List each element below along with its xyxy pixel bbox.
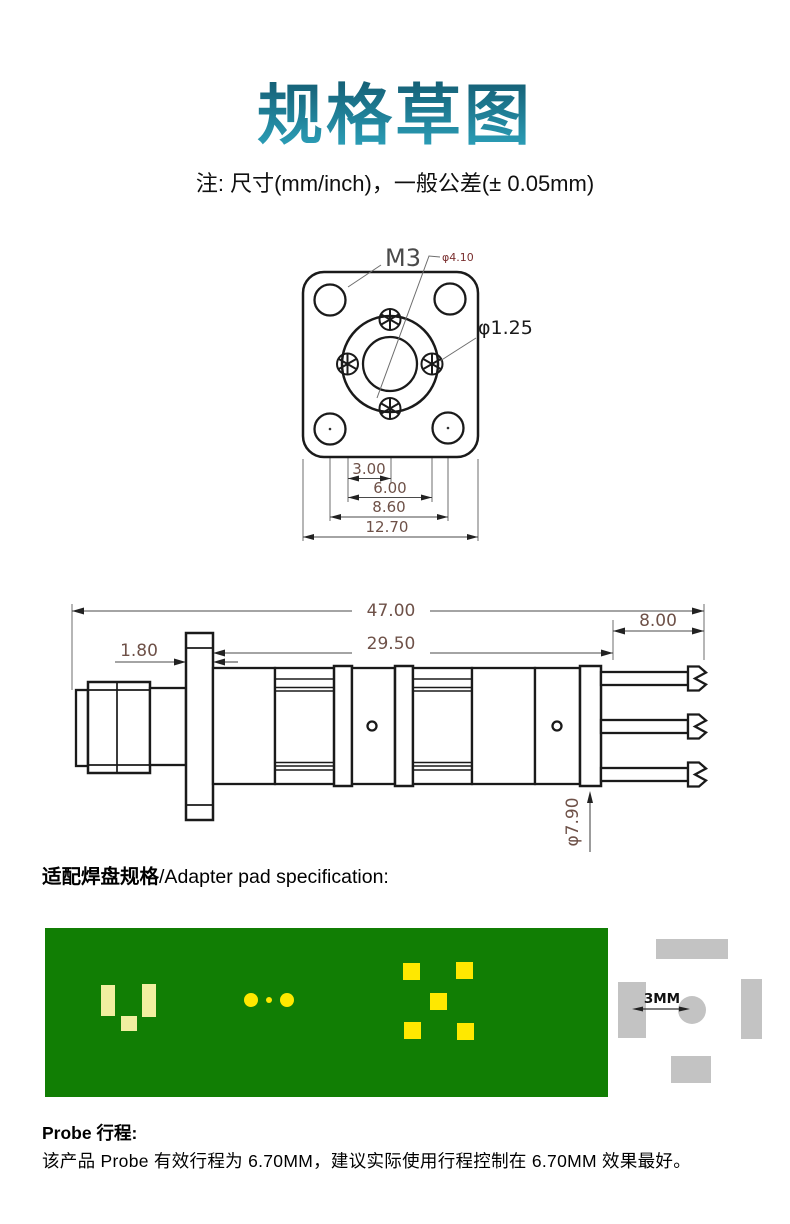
probe-body [213,666,601,786]
pcb-pad [121,1016,137,1031]
svg-text:47.00: 47.00 [367,601,416,621]
pcb-pad [244,993,258,1007]
dim-3mm: 3MM [644,991,680,1007]
pin-tip-top [688,667,706,691]
pcb-pad [403,963,420,980]
side-view-drawing: 47.00 8.00 29.50 1.80 [60,595,720,860]
probe-travel-heading: Probe 行程: [42,1120,137,1145]
dim-body-length: 29.50 [213,634,613,657]
tolerance-note: 注: 尺寸(mm/inch)，一般公差(± 0.05mm) [0,166,790,198]
label-pin-diameter: φ1.25 [478,317,533,339]
dim-tail-length: 8.00 [613,611,704,635]
label-bore-diameter: φ4.10 [442,251,474,264]
probe-travel-description: 该产品 Probe 有效行程为 6.70MM，建议实际使用行程控制在 6.70M… [42,1148,762,1173]
pcb-pad [430,993,447,1010]
pcb-pad-image [45,928,608,1097]
pcb-pad [457,1023,474,1040]
label-m3: M3 [385,244,421,272]
adapter-pad-diagram: 3MM [610,930,775,1090]
adapter-heading-zh: 适配焊盘规格 [42,866,159,888]
dim-total-length: 47.00 [72,601,704,621]
mounting-flange [186,633,213,820]
pcb-pad [266,997,272,1003]
pin-tip-bottom [688,763,706,787]
adapter-heading-en: /Adapter pad specification: [159,866,389,888]
pcb-pad [280,993,294,1007]
dim-3-00: 3.00 [352,460,385,478]
flange-front-view-drawing: M3 φ4.10 φ1.25 3.00 6.00 8.60 12.70 [260,230,560,560]
svg-text:φ7.90: φ7.90 [563,797,583,846]
flange-outline [303,272,478,457]
pcb-pad [456,962,473,979]
svg-text:8.00: 8.00 [639,611,677,631]
sma-connector [76,682,186,773]
pcb-pad [404,1022,421,1039]
pcb-pad [101,985,115,1016]
adapter-pads [618,939,762,1083]
dim-12-70: 12.70 [366,518,409,536]
adapter-pad-heading: 适配焊盘规格/Adapter pad specification: [42,860,389,889]
spec-sheet-page: 规格草图 注: 尺寸(mm/inch)，一般公差(± 0.05mm) [0,0,790,1224]
svg-text:1.80: 1.80 [120,641,158,661]
svg-text:29.50: 29.50 [367,634,416,654]
dim-body-diameter: φ7.90 [563,791,593,852]
pcb-pad [142,984,156,1017]
page-title: 规格草图 [0,62,790,158]
probe-pins [601,667,706,787]
dim-8-60: 8.60 [372,498,405,516]
pin-tip-middle [688,715,706,739]
dim-6-00: 6.00 [373,479,406,497]
